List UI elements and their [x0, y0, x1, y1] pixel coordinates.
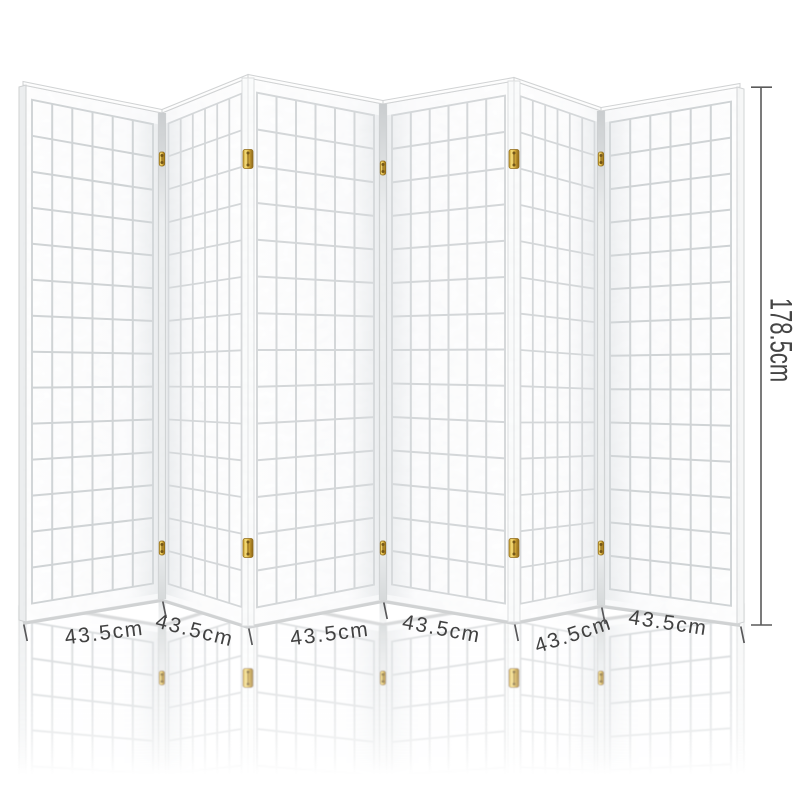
- svg-text:178.5cm: 178.5cm: [764, 298, 800, 382]
